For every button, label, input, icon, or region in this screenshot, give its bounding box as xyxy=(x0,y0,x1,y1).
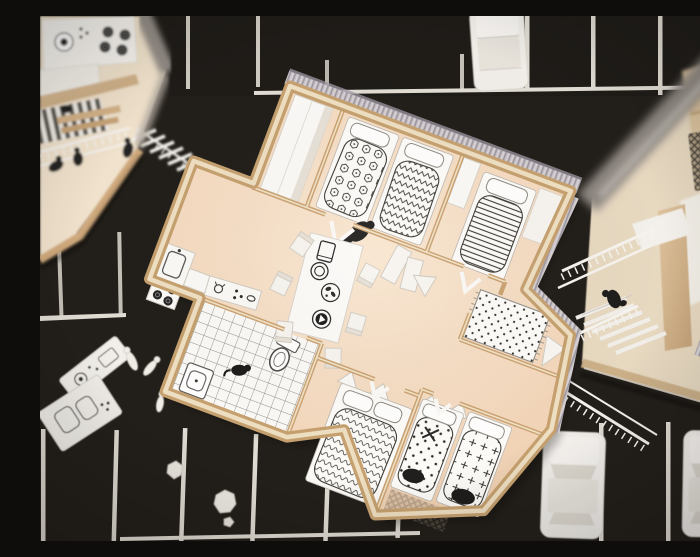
scene-canvas xyxy=(40,16,700,541)
warm-cast-overlay xyxy=(40,16,700,541)
model-photograph: Top-down photograph of a cardboard archi… xyxy=(40,16,700,541)
